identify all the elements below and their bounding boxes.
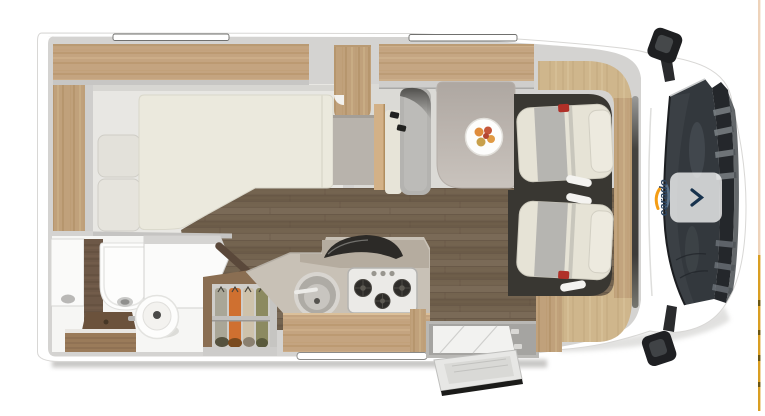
svg-text:carado: carado	[658, 179, 670, 216]
